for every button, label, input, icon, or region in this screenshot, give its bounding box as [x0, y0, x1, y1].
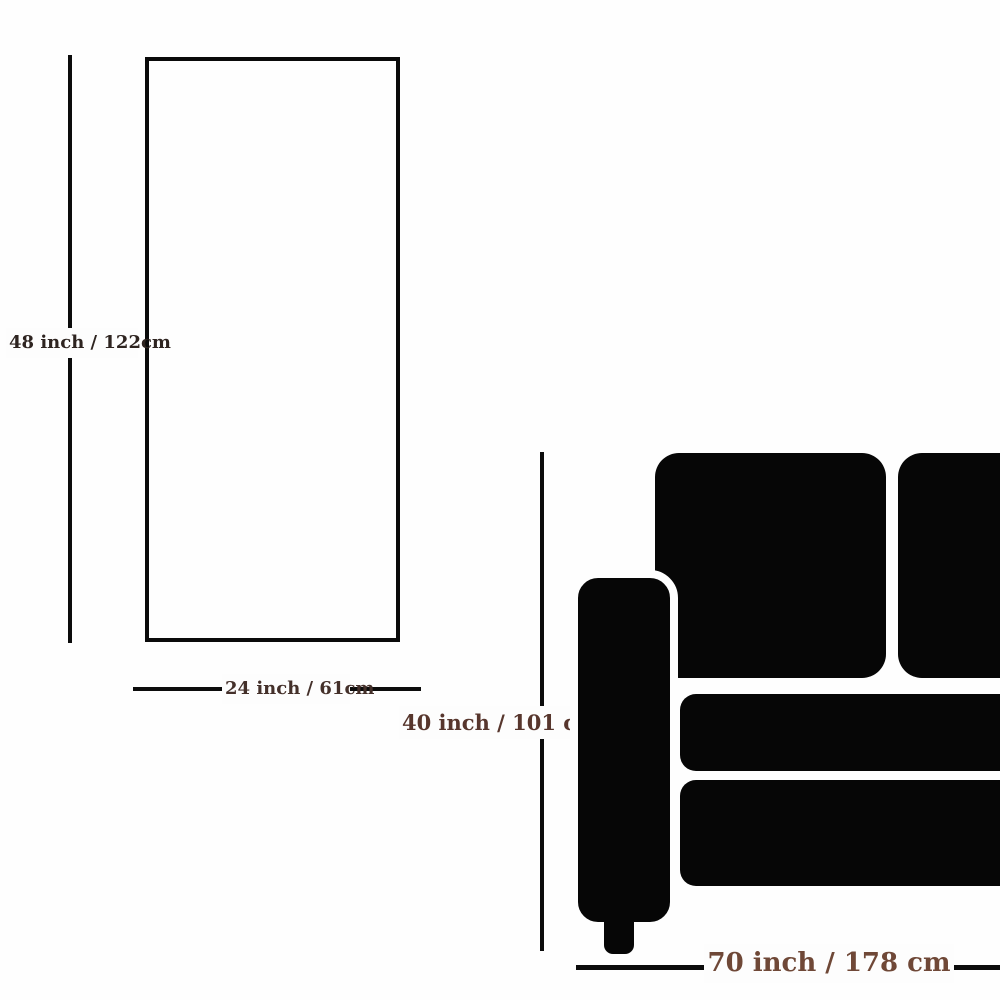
sofa-width-label: 70 inch / 178 cm [704, 944, 954, 983]
sofa-armrest [570, 570, 678, 930]
sofa-leg [604, 916, 634, 954]
sofa-seat-cushion-lower [680, 780, 1000, 886]
sofa-height-dimension-line [540, 452, 544, 951]
sofa-seat-cushion-upper [680, 694, 1000, 771]
sofa-height-label: 40 inch / 101 cm [399, 706, 585, 739]
canvas-height-label: 48 inch / 122cm [6, 328, 138, 358]
sofa-back-cushion-left [655, 453, 886, 678]
canvas-width-label: 24 inch / 61cm [222, 674, 350, 704]
canvas-outline-rectangle [145, 57, 400, 642]
size-comparison-diagram: 48 inch / 122cm 24 inch / 61cm 40 inch /… [0, 0, 1000, 1000]
sofa-back-cushion-right [898, 453, 1000, 678]
